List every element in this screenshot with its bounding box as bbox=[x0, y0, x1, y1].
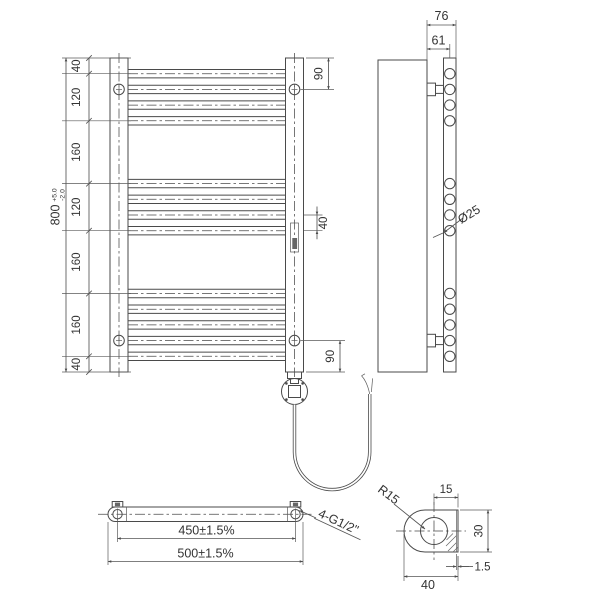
dim-tube-diameter: Ø25 bbox=[455, 202, 483, 226]
dim-chain-1: 40 bbox=[71, 60, 83, 73]
dim-chain-3: 160 bbox=[71, 143, 83, 162]
mounting-bracket-side-top bbox=[427, 83, 444, 96]
dim-overall-tol-minus: -2.0 bbox=[60, 189, 67, 201]
mounting-bracket-side-bottom bbox=[427, 334, 444, 347]
dim-chain-7: 40 bbox=[71, 358, 83, 371]
dim-chain-4: 120 bbox=[71, 198, 83, 217]
side-view: 76 61 Ø25 bbox=[378, 9, 483, 372]
cable-stripped-end bbox=[362, 374, 373, 394]
section-detail-view: 15 30 40 1.5 R15 bbox=[375, 482, 492, 592]
section-hatching bbox=[446, 534, 458, 553]
technical-drawing-page: 40 120 160 120 160 160 40 800 +5.0 -2.0 … bbox=[0, 0, 600, 600]
dim-chain-2: 120 bbox=[71, 88, 83, 107]
dim-overall-height: 800 bbox=[49, 205, 63, 226]
right-connection bbox=[290, 502, 301, 521]
dim-wall-to-center: 61 bbox=[432, 34, 446, 48]
tube-profile-outline bbox=[404, 510, 458, 552]
rung-cross-sections bbox=[445, 69, 455, 362]
dim-profile-height: 30 bbox=[474, 525, 486, 538]
front-view: 40 120 160 120 160 160 40 800 +5.0 -2.0 … bbox=[49, 53, 373, 490]
dim-center-to-face: 15 bbox=[440, 484, 453, 496]
brick-wall bbox=[378, 60, 427, 372]
dim-bracket-bottom: 90 bbox=[325, 350, 337, 363]
chain-dim-labels: 40 120 160 120 160 160 40 bbox=[71, 60, 83, 371]
radius-leader bbox=[394, 504, 425, 529]
dim-depth: 76 bbox=[435, 9, 449, 23]
dim-end-radius: R15 bbox=[375, 482, 402, 507]
overall-height-label: 800 +5.0 -2.0 bbox=[49, 188, 67, 225]
rail-side-profile bbox=[444, 58, 457, 372]
dim-chain-6: 160 bbox=[71, 315, 83, 334]
dim-overall-tol-plus: +5.0 bbox=[52, 188, 59, 202]
bottom-view: 450±1.5% 500±1.5% 4-G1/2" bbox=[98, 502, 366, 566]
dim-bracket-top: 90 bbox=[314, 67, 326, 80]
technical-drawing-canvas: 40 120 160 120 160 160 40 800 +5.0 -2.0 … bbox=[0, 0, 600, 600]
rung-centerlines bbox=[128, 74, 286, 357]
element-head bbox=[282, 379, 308, 405]
dim-chain-5: 160 bbox=[71, 253, 83, 272]
dim-bracket-centers: 450±1.5% bbox=[178, 524, 234, 538]
dim-rung-pitch: 40 bbox=[318, 217, 330, 230]
leader-tail bbox=[433, 233, 443, 238]
dim-wall-thickness: 1.5 bbox=[475, 562, 491, 574]
power-cable bbox=[295, 374, 373, 490]
dim-overall-width: 500±1.5% bbox=[177, 547, 233, 561]
dim-profile-width: 40 bbox=[421, 578, 435, 592]
thread-label: 4-G1/2" bbox=[314, 506, 366, 540]
left-connection bbox=[112, 502, 123, 521]
